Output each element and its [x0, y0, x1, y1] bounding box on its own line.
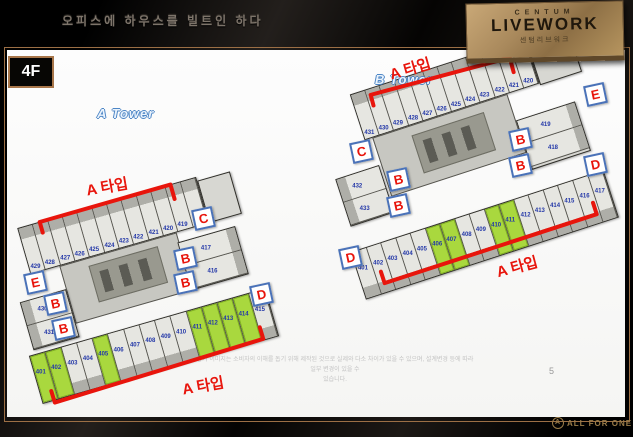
- unit-number: 411: [192, 325, 202, 331]
- unit-number: 416: [208, 268, 218, 274]
- unit-number: 419: [178, 222, 188, 228]
- page-number: 5: [549, 366, 554, 376]
- unit-number: 414: [550, 203, 560, 209]
- type-badge-b: B: [508, 127, 533, 152]
- header-tagline: 오피스에 하우스를 빌트인 하다: [62, 12, 264, 29]
- unit-number: 407: [447, 237, 457, 243]
- unit-number: 403: [67, 361, 77, 367]
- unit-number: 406: [114, 347, 124, 353]
- unit-number: 430: [379, 125, 389, 131]
- unit-number: 401: [358, 266, 368, 272]
- unit-number: 413: [223, 316, 233, 322]
- unit-number: 422: [494, 88, 504, 94]
- type-badge-d: D: [338, 245, 363, 270]
- type-badge-b: B: [51, 316, 76, 341]
- unit-number: 412: [520, 213, 530, 219]
- unit-number: 403: [388, 256, 398, 262]
- type-badge-b: B: [508, 153, 533, 178]
- unit-number: 426: [437, 106, 447, 112]
- unit-number: 427: [422, 111, 432, 117]
- tower-a-label: A Tower: [97, 106, 154, 121]
- floor-badge: 4F: [8, 56, 54, 88]
- unit-number: 431: [364, 130, 374, 136]
- unit-number: 418: [548, 145, 558, 151]
- unit-number: 409: [476, 227, 486, 233]
- unit-number: 425: [451, 102, 461, 108]
- unit-number: 412: [208, 320, 218, 326]
- type-badge-c: C: [191, 206, 216, 231]
- unit-number: 415: [565, 198, 575, 204]
- unit-number: 417: [594, 189, 604, 195]
- unit-number: 414: [239, 311, 249, 317]
- disclaimer-line2: 있습니다.: [323, 377, 347, 383]
- unit-number: 409: [161, 334, 171, 340]
- unit-number: 426: [75, 251, 85, 257]
- unit-number: 416: [580, 194, 590, 200]
- unit-number: 417: [201, 245, 211, 251]
- type-badge-d: D: [583, 152, 608, 177]
- type-badge-d: D: [249, 282, 274, 307]
- unit-number: 429: [30, 264, 40, 270]
- unit-number: 429: [393, 121, 403, 127]
- footer-brand: A ALL FOR ONE: [552, 417, 632, 429]
- unit-number: 421: [148, 230, 158, 236]
- type-badge-b: B: [43, 291, 68, 316]
- disclaimer-line1: 상기 이미지는 소비자의 이해를 돕기 위해 제작된 것으로 실제와 다소 차이…: [197, 357, 474, 373]
- type-badge-c: C: [349, 139, 374, 164]
- unit-number: 423: [480, 92, 490, 98]
- unit-number: 424: [465, 97, 475, 103]
- unit-number: 428: [408, 116, 418, 122]
- unit-number: 410: [176, 329, 186, 335]
- unit-number: 428: [45, 260, 55, 266]
- unit-number: 408: [145, 338, 155, 344]
- unit-number: 420: [523, 78, 533, 84]
- unit-number: 401: [36, 370, 46, 376]
- unit-number: 419: [541, 122, 551, 128]
- unit-number: 415: [255, 307, 265, 313]
- brand-sub: 센텀리브워크: [467, 33, 623, 46]
- footer-logo-icon: A: [552, 417, 564, 429]
- footer-brand-text: ALL FOR ONE: [567, 419, 632, 428]
- type-badge-e: E: [23, 270, 48, 295]
- unit-number: 413: [535, 208, 545, 214]
- type-badge-b: B: [173, 270, 198, 295]
- unit-number: 408: [461, 232, 471, 238]
- type-badge-e: E: [583, 82, 608, 107]
- unit-number: 406: [432, 242, 442, 248]
- unit-number: 422: [134, 234, 144, 240]
- unit-number: 433: [360, 206, 370, 212]
- unit-number: 402: [373, 261, 383, 267]
- unit-number: 405: [417, 246, 427, 252]
- type-badge-b: B: [386, 167, 411, 192]
- disclaimer: 상기 이미지는 소비자의 이해를 돕기 위해 제작된 것으로 실제와 다소 차이…: [195, 355, 475, 386]
- unit-number: 410: [491, 222, 501, 228]
- type-badge-b: B: [386, 193, 411, 218]
- unit-number: 411: [506, 218, 516, 224]
- unit-number: 421: [509, 83, 519, 89]
- brand-main: LIVEWORK: [467, 14, 623, 34]
- unit-number: 432: [352, 183, 362, 189]
- unit-number: 427: [60, 256, 70, 262]
- unit-number: 404: [402, 251, 412, 257]
- slide-stage: 오피스에 하우스를 빌트인 하다 CENTUM LIVEWORK 센텀리브워크 …: [0, 0, 633, 437]
- unit-number: 425: [89, 247, 99, 253]
- unit-number: 404: [83, 356, 93, 362]
- brand-plaque: CENTUM LIVEWORK 센텀리브워크: [465, 0, 624, 63]
- unit-number: 423: [119, 239, 129, 245]
- unit-number: 402: [51, 365, 61, 371]
- unit-number: 424: [104, 243, 114, 249]
- unit-number: 420: [163, 226, 173, 232]
- unit-number: 407: [130, 343, 140, 349]
- type-badge-b: B: [173, 246, 198, 271]
- unit-number: 405: [98, 352, 108, 358]
